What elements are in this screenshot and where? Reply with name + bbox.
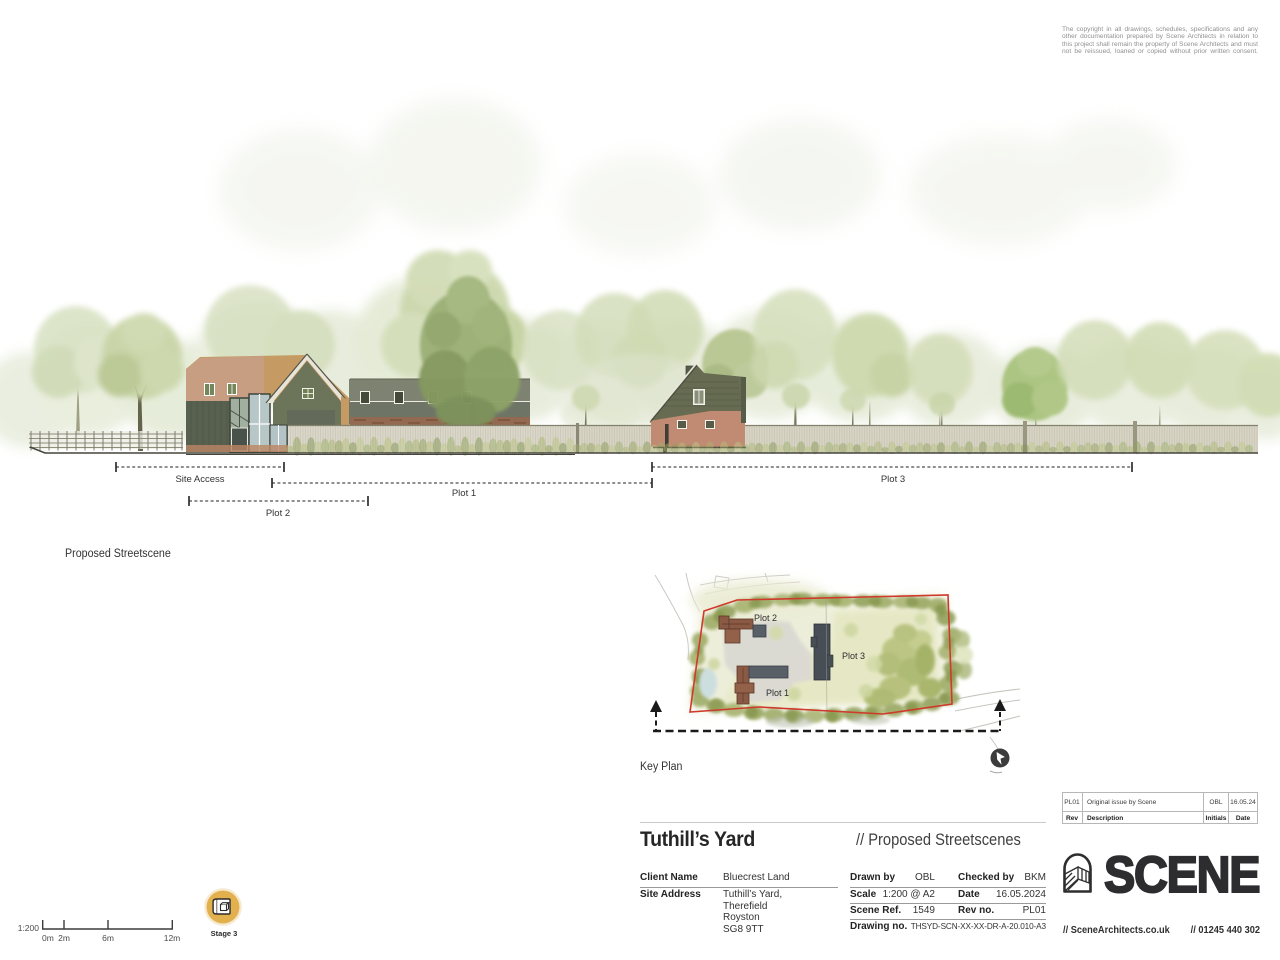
svg-text:Description: Description <box>1087 815 1123 822</box>
svg-text:Original issue by Scene: Original issue by Scene <box>1087 799 1157 806</box>
svg-text:1:200: 1:200 <box>18 923 40 933</box>
svg-text:0m: 0m <box>42 933 54 943</box>
svg-text:Plot 3: Plot 3 <box>842 651 865 661</box>
svg-text:OBL: OBL <box>1209 799 1223 806</box>
svg-text:6m: 6m <box>102 933 114 943</box>
svg-text:Initials: Initials <box>1206 815 1227 822</box>
svg-text:Plot 1: Plot 1 <box>452 488 476 499</box>
svg-text:Site Access: Site Access <box>175 474 224 485</box>
svg-text:Stage 3: Stage 3 <box>211 929 238 938</box>
svg-text:2m: 2m <box>58 933 70 943</box>
svg-text:Plot 2: Plot 2 <box>266 508 290 519</box>
svg-text:Plot 2: Plot 2 <box>754 613 777 623</box>
svg-text:Rev: Rev <box>1066 815 1078 822</box>
svg-text:Plot 1: Plot 1 <box>766 688 789 698</box>
svg-text:Date: Date <box>1236 815 1251 822</box>
svg-text:Plot 3: Plot 3 <box>881 474 905 485</box>
svg-text:16.05.24: 16.05.24 <box>1230 799 1256 806</box>
svg-text:PL01: PL01 <box>1064 799 1080 806</box>
svg-text:12m: 12m <box>164 933 181 943</box>
